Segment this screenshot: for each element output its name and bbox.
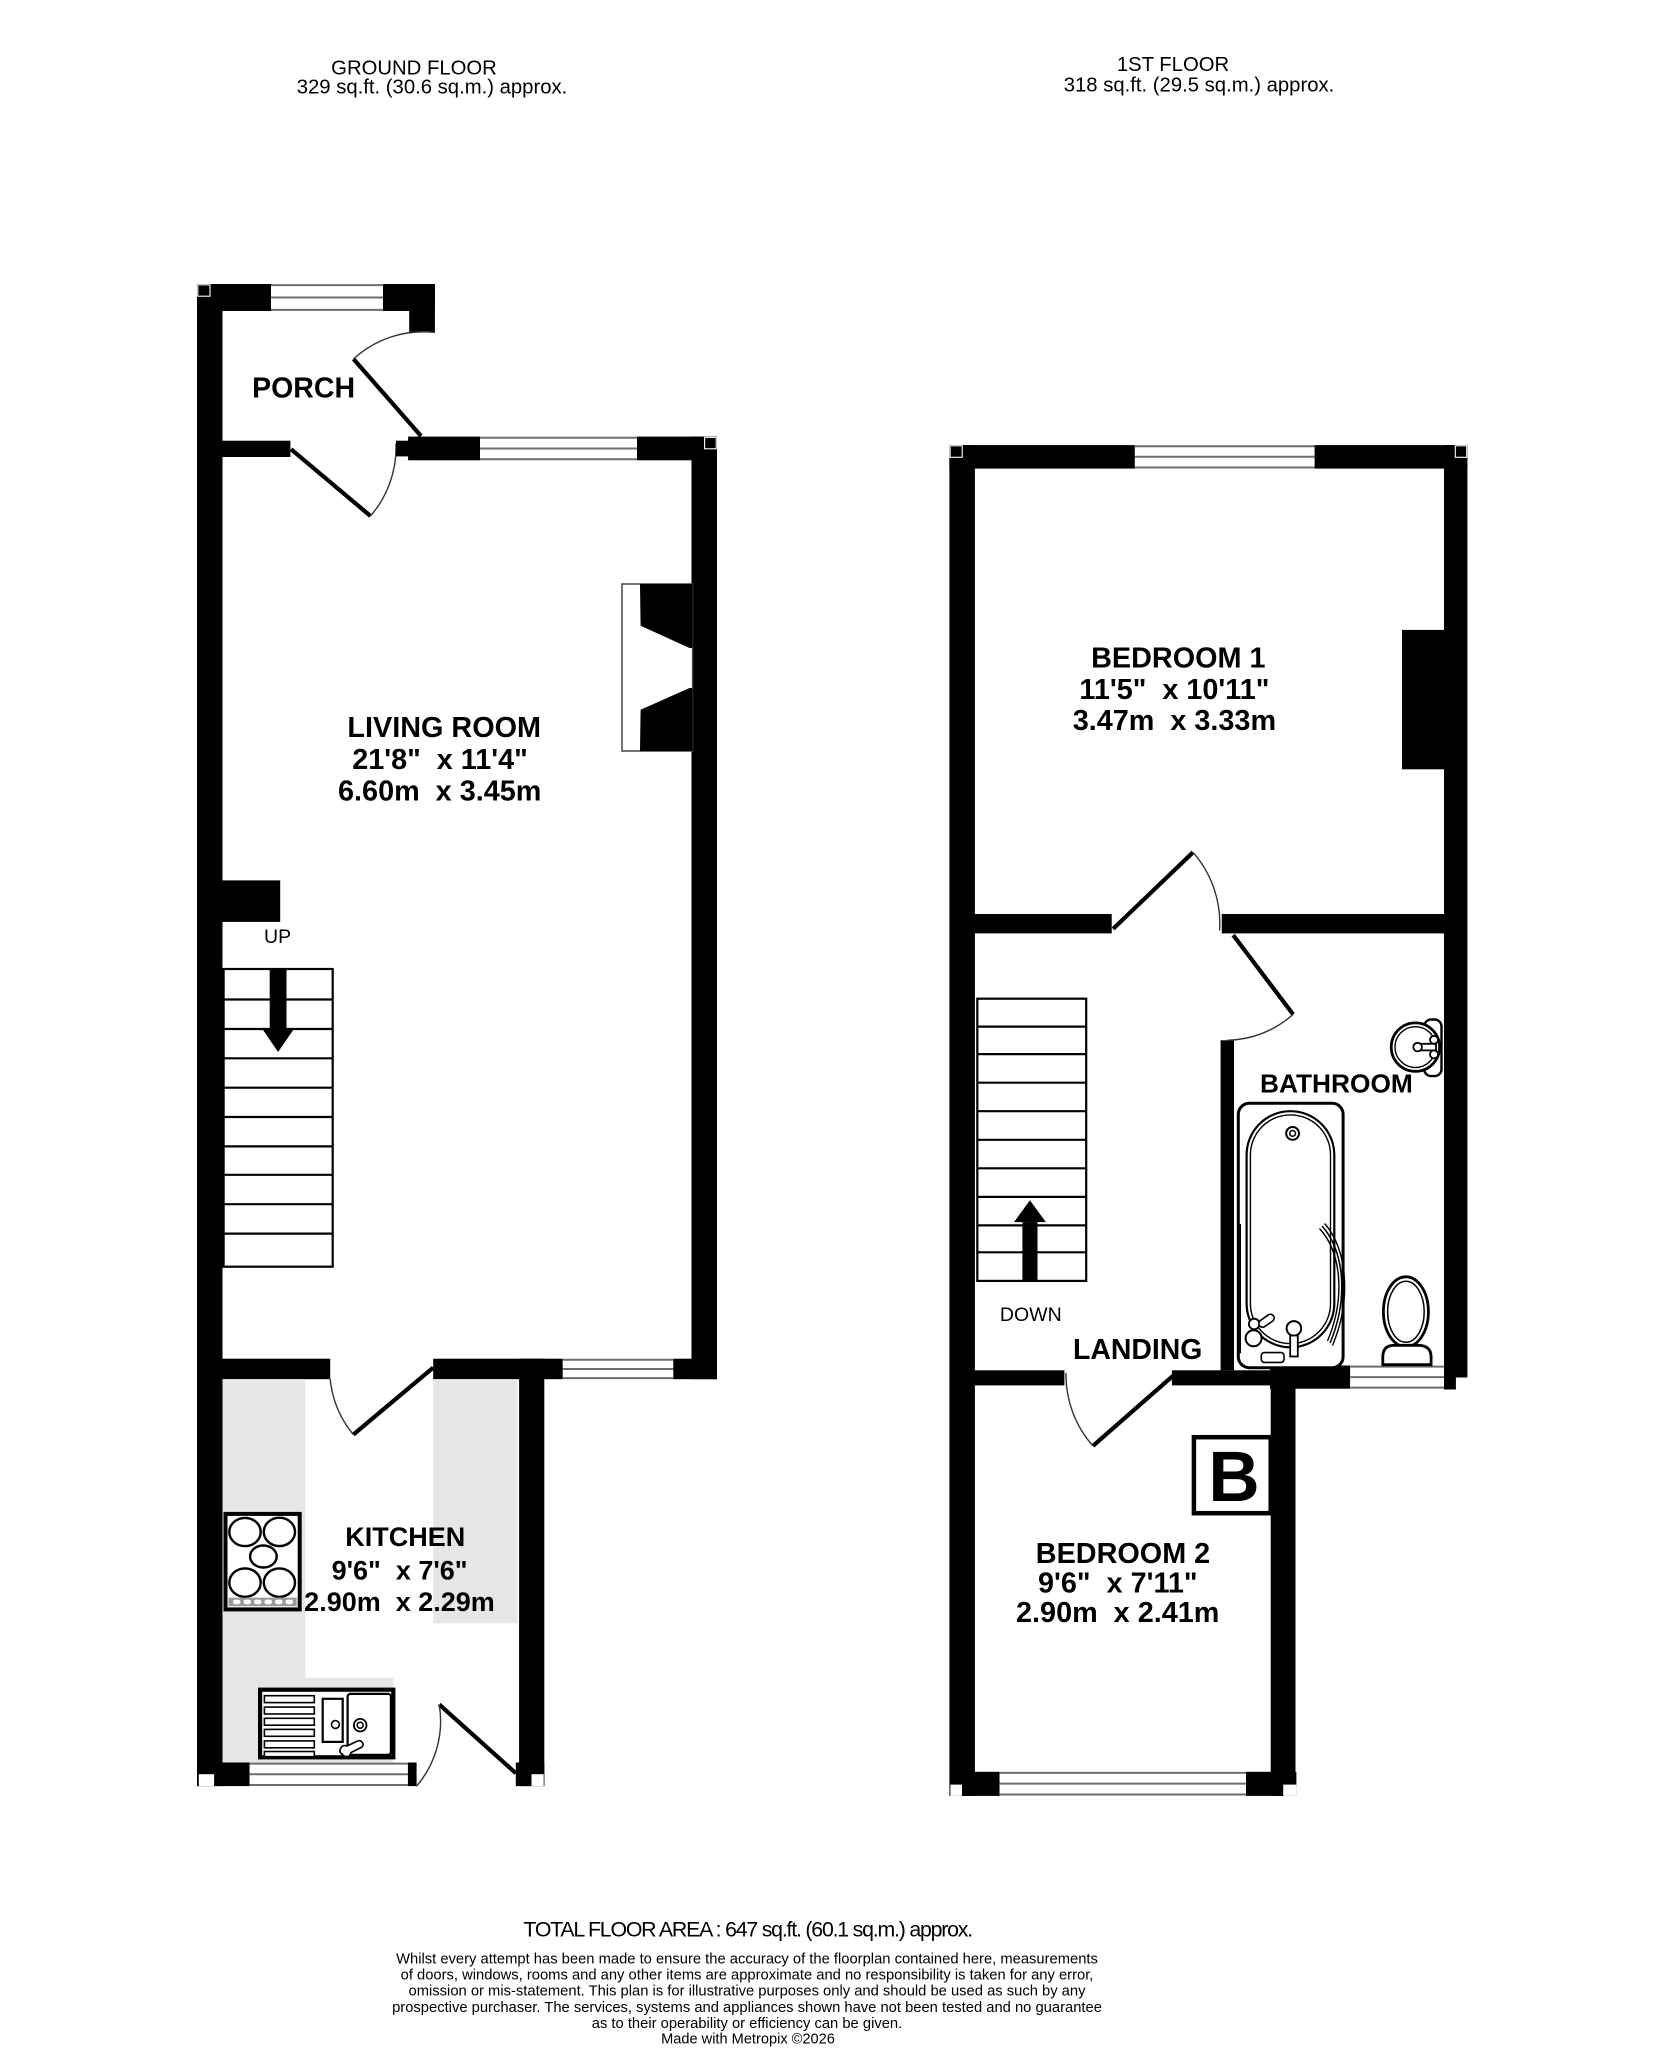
svg-text:Whilst every attempt has been: Whilst every attempt has been made to en… — [396, 1951, 1098, 1967]
svg-text:as to their operability or eff: as to their operability or efficiency ca… — [592, 2016, 902, 2032]
svg-text:1ST FLOOR: 1ST FLOOR — [1117, 54, 1229, 76]
svg-text:omission or mis-statement. Thi: omission or mis-statement. This plan is … — [409, 1984, 1087, 2000]
svg-text:LANDING: LANDING — [1073, 1334, 1202, 1366]
svg-text:of doors, windows, rooms and a: of doors, windows, rooms and any other i… — [401, 1968, 1094, 1984]
svg-text:21'8" x 11'4": 21'8" x 11'4" — [352, 744, 528, 776]
svg-text:3.47m x 3.33m: 3.47m x 3.33m — [1073, 705, 1276, 737]
svg-text:Made with Metropix ©2026: Made with Metropix ©2026 — [661, 2032, 835, 2048]
svg-text:BEDROOM 1: BEDROOM 1 — [1091, 643, 1265, 675]
svg-text:2.90m x 2.41m: 2.90m x 2.41m — [1016, 1597, 1219, 1629]
svg-text:prospective purchaser. The ser: prospective purchaser. The services, sys… — [392, 2000, 1102, 2016]
svg-text:DOWN: DOWN — [1000, 1304, 1062, 1326]
svg-text:LIVING ROOM: LIVING ROOM — [347, 712, 541, 744]
svg-text:PORCH: PORCH — [252, 372, 355, 404]
svg-text:KITCHEN: KITCHEN — [345, 1522, 465, 1552]
svg-text:B: B — [1208, 1438, 1259, 1517]
svg-text:11'5" x 10'11": 11'5" x 10'11" — [1079, 674, 1269, 706]
svg-text:TOTAL FLOOR AREA : 647 sq.ft.: TOTAL FLOOR AREA : 647 sq.ft. (60.1 sq.m… — [523, 1918, 972, 1942]
svg-text:9'6" x 7'6": 9'6" x 7'6" — [332, 1556, 468, 1586]
svg-text:UP: UP — [264, 926, 291, 948]
svg-text:329 sq.ft. (30.6 sq.m.) approx: 329 sq.ft. (30.6 sq.m.) approx. — [297, 77, 568, 99]
svg-text:6.60m x 3.45m: 6.60m x 3.45m — [338, 776, 541, 808]
svg-text:318 sq.ft. (29.5 sq.m.) approx: 318 sq.ft. (29.5 sq.m.) approx. — [1064, 75, 1335, 97]
svg-text:BATHROOM: BATHROOM — [1260, 1068, 1413, 1098]
svg-text:9'6" x 7'11": 9'6" x 7'11" — [1038, 1568, 1198, 1600]
svg-text:BEDROOM 2: BEDROOM 2 — [1036, 1538, 1210, 1570]
svg-text:2.90m x 2.29m: 2.90m x 2.29m — [304, 1587, 495, 1617]
